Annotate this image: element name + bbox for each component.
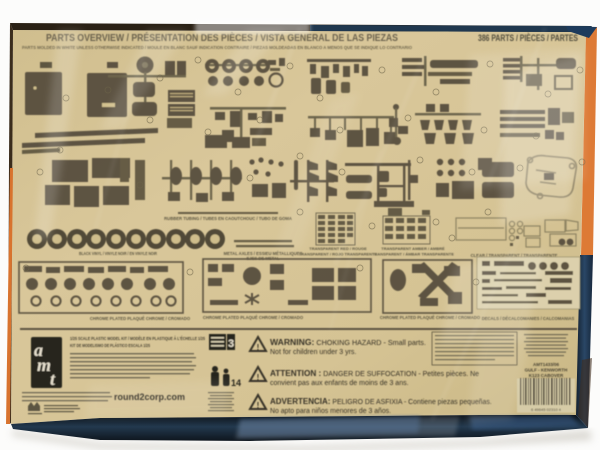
svg-text:KIT DE MODELISMO DE PLÁSTICO E: KIT DE MODELISMO DE PLÁSTICO ESCALA 1/25 — [70, 342, 150, 348]
svg-text:CHROME PLATED PLAQUÉ CHROME /: CHROME PLATED PLAQUÉ CHROME / CROMADO — [203, 315, 304, 320]
svg-text:TRANSPARENT / ÁMBAR TRANSPAREN: TRANSPARENT / ÁMBAR TRANSPARENTE — [372, 252, 454, 257]
svg-text:3: 3 — [228, 338, 234, 350]
svg-text:GULF - KENWORTH: GULF - KENWORTH — [525, 368, 568, 373]
svg-text:K123 CABOVER: K123 CABOVER — [529, 373, 564, 378]
svg-text:ATTENTION : DANGER DE SUFFOCAT: ATTENTION : DANGER DE SUFFOCATION - Peti… — [270, 369, 479, 378]
svg-text:14: 14 — [231, 378, 241, 388]
svg-text:m: m — [37, 355, 51, 375]
svg-text:Not for children under 3 yrs.: Not for children under 3 yrs. — [270, 349, 356, 356]
svg-text:!: ! — [257, 343, 260, 352]
svg-text:6 49645 02310 4: 6 49645 02310 4 — [531, 407, 562, 412]
svg-text:!: ! — [257, 401, 260, 410]
svg-text:TRANSPARENT RED / ROUGE: TRANSPARENT RED / ROUGE — [309, 246, 367, 251]
svg-text:BLACK VINYL / VINYLE NOIR / EN: BLACK VINYL / VINYLE NOIR / EN VINYLE NO… — [79, 251, 157, 256]
svg-text:RUBBER TUBING / TUBES EN CAOUT: RUBBER TUBING / TUBES EN CAOUTCHOUC / TU… — [164, 216, 292, 221]
svg-text:ADVERTENCIA: PELIGRO DE ASFIXI: ADVERTENCIA: PELIGRO DE ASFIXIA - Contie… — [270, 397, 492, 406]
svg-text:WARNING: CHOKING HAZARD - Smal: WARNING: CHOKING HAZARD - Small parts. — [270, 337, 426, 347]
svg-text:AMT1433/06: AMT1433/06 — [533, 362, 560, 367]
svg-text:386 PARTS / PIÈCES / PARTES: 386 PARTS / PIÈCES / PARTES — [478, 33, 578, 43]
svg-text:PARTS MOLDED IN WHITE UNLESS O: PARTS MOLDED IN WHITE UNLESS OTHERWISE I… — [22, 45, 412, 51]
svg-text:No apto para niños menores de: No apto para niños menores de 3 años. — [270, 408, 391, 415]
svg-text:!: ! — [257, 373, 260, 382]
svg-text:convient pas aux enfants de mo: convient pas aux enfants de moins de 3 a… — [270, 380, 409, 387]
svg-text:CHROME PLATED PLAQUÉ CHROME /: CHROME PLATED PLAQUÉ CHROME / CROMADO — [90, 316, 191, 321]
svg-text:1/25 SCALE PLASTIC MODEL KIT /: 1/25 SCALE PLASTIC MODEL KIT / MODÈLE EN… — [70, 334, 205, 341]
svg-text:TRANSPARENT AMBER / AMBRÉ: TRANSPARENT AMBER / AMBRÉ — [381, 246, 445, 251]
